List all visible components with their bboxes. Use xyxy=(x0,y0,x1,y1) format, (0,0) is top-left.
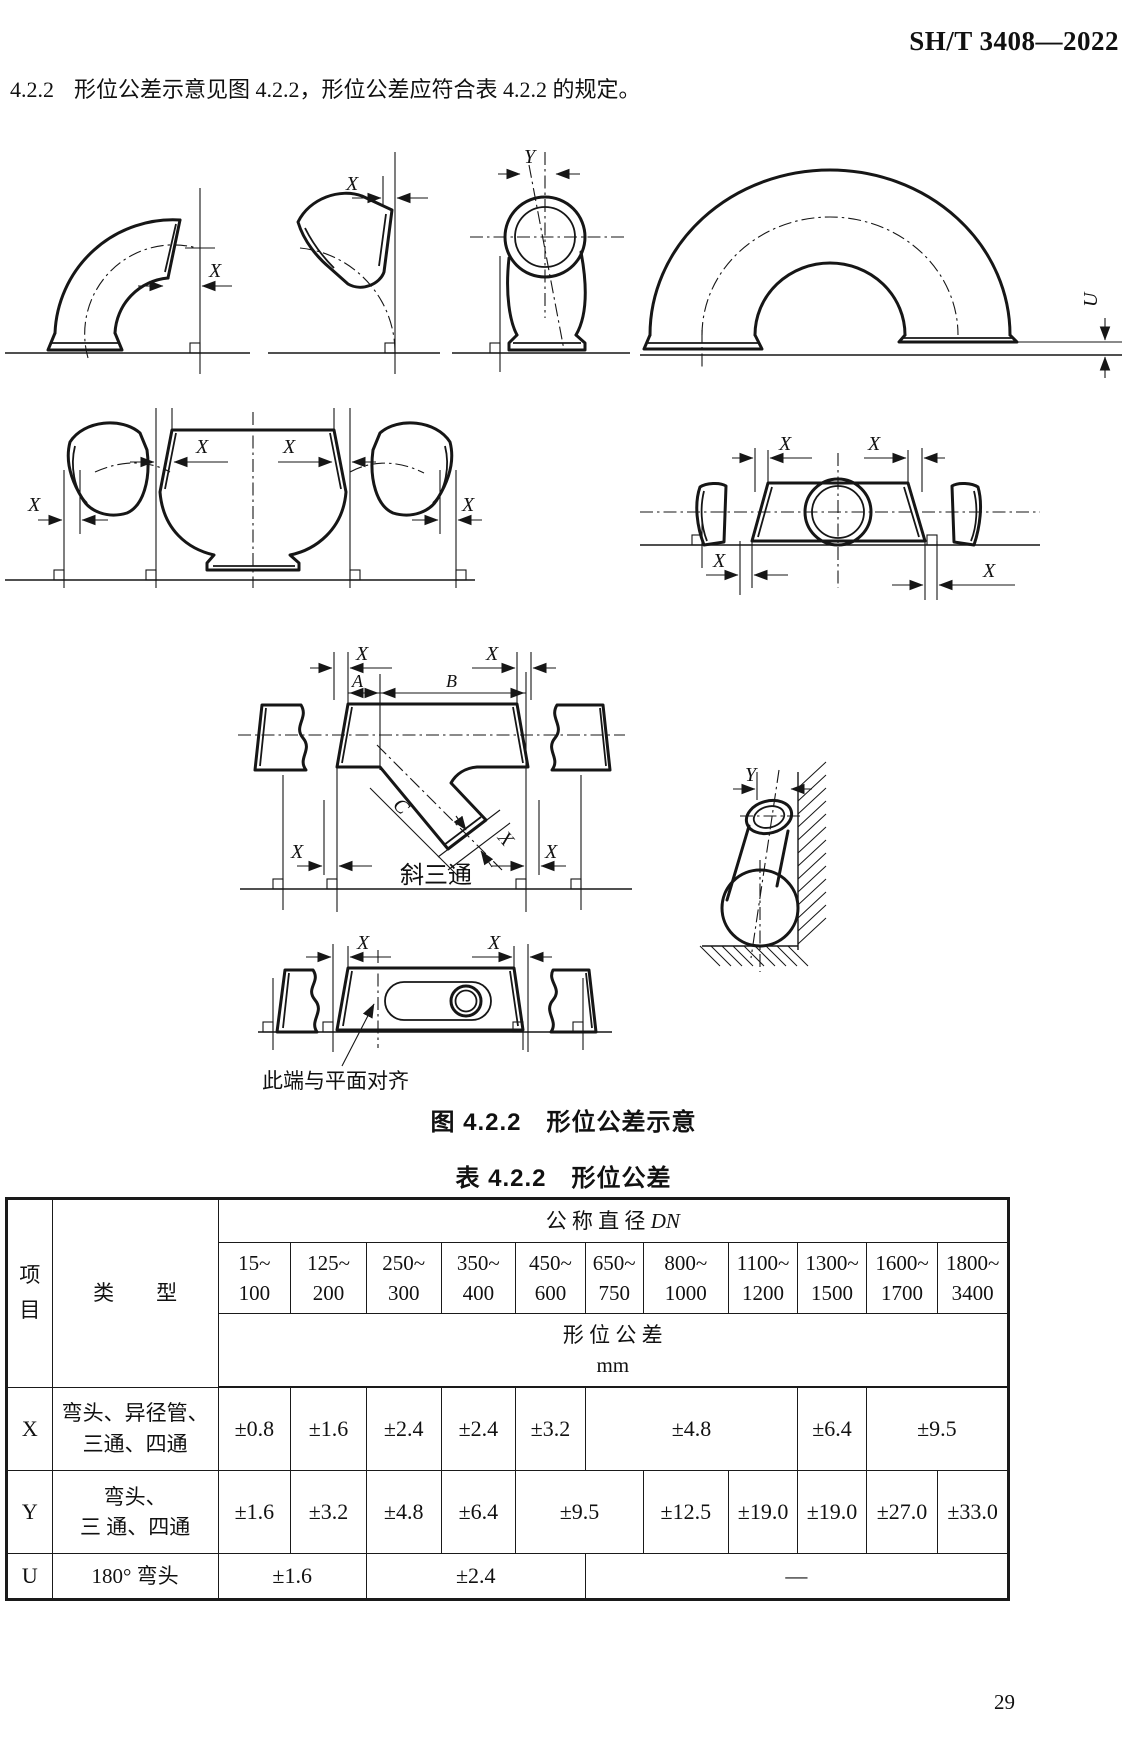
dim-label-x: X xyxy=(356,932,370,954)
col-header-dn-range-5: 650~750 xyxy=(585,1243,643,1314)
row-header: X xyxy=(7,1387,53,1471)
right-angle-mark xyxy=(327,879,337,889)
dim-label-x: X xyxy=(27,494,41,516)
dim-label-a: A xyxy=(351,671,364,691)
dim-label-x: X xyxy=(290,841,304,863)
tolerance-cell: ±1.6 xyxy=(291,1387,367,1471)
dim-label-x: X xyxy=(487,932,501,954)
table-caption: 表 4.2.2 形位公差 xyxy=(0,1158,1127,1193)
dim-label-u: U xyxy=(1080,291,1102,307)
col-header-item: 项目 xyxy=(7,1199,53,1388)
tolerance-cell: ±4.8 xyxy=(366,1471,441,1554)
dim-label-x: X xyxy=(195,436,209,458)
tolerance-cell: ±2.4 xyxy=(366,1554,585,1600)
page-number: 29 xyxy=(994,1690,1015,1715)
tolerance-cell: ±6.4 xyxy=(798,1387,866,1471)
dim-label-y: Y xyxy=(745,764,758,786)
dim-label-x: X xyxy=(778,433,792,455)
right-angle-mark xyxy=(490,343,500,353)
col-header-dn-range-7: 1100~1200 xyxy=(728,1243,797,1314)
col-header-dn-range-6: 800~1000 xyxy=(643,1243,728,1314)
tolerance-cell: ±19.0 xyxy=(728,1471,797,1554)
right-angle-mark xyxy=(323,1022,333,1032)
tolerance-label: 形 位 公 差 xyxy=(219,1320,1007,1350)
tolerance-cell: ±1.6 xyxy=(218,1471,291,1554)
tolerance-cell: ±3.2 xyxy=(291,1471,367,1554)
dim-label-x: X xyxy=(208,260,222,282)
drawing-return-bend-180: U xyxy=(640,170,1122,378)
dn-symbol: DN xyxy=(651,1209,680,1233)
tolerance-cell: ±3.2 xyxy=(516,1387,585,1471)
drawing-tee-front: X X X X xyxy=(5,408,482,588)
right-angle-mark xyxy=(273,879,283,889)
dim-label-x: X xyxy=(867,433,881,455)
tolerance-cell: ±33.0 xyxy=(938,1471,1009,1554)
right-angle-mark xyxy=(263,1022,273,1032)
drawing-tee-horizontal: X X X X xyxy=(640,433,1040,600)
right-angle-mark xyxy=(350,570,360,580)
tolerance-cell: ±27.0 xyxy=(866,1471,938,1554)
dim-label-x: X xyxy=(982,560,996,582)
table-row-y: Y 弯头、三 通、四通 ±1.6 ±3.2 ±4.8 ±6.4 ±9.5 ±12… xyxy=(7,1471,1009,1554)
right-angle-mark xyxy=(456,570,466,580)
drawing-elbow-top-view: Y xyxy=(452,146,630,372)
drawing-lateral-tee: A B X X X X C X 斜三通 xyxy=(238,643,632,912)
col-header-dn-range-1: 125~200 xyxy=(291,1243,367,1314)
tolerance-figure: X X xyxy=(0,0,1127,1100)
dim-label-y: Y xyxy=(524,146,537,168)
dim-label-x: X xyxy=(544,841,558,863)
figure-caption: 图 4.2.2 形位公差示意 xyxy=(0,1102,1127,1137)
right-angle-mark xyxy=(571,879,581,889)
right-angle-mark xyxy=(146,570,156,580)
tolerance-cell: — xyxy=(585,1554,1008,1600)
drawing-elbow-90: X xyxy=(5,188,250,374)
drawing-elbow-45: X xyxy=(268,152,440,374)
lateral-tee-label: 斜三通 xyxy=(400,862,472,889)
tolerance-cell: ±0.8 xyxy=(218,1387,291,1471)
col-header-dn-range-0: 15~100 xyxy=(218,1243,291,1314)
col-header-dn-range-9: 1600~1700 xyxy=(866,1243,938,1314)
drawing-lateral-corner-wall: Y xyxy=(700,762,826,972)
leader-arrow xyxy=(342,1004,374,1066)
dn-label: 公 称 直 径 xyxy=(546,1209,651,1233)
row-header: Y xyxy=(7,1471,53,1554)
type-cell: 弯头、异径管、三通、四通 xyxy=(52,1387,218,1471)
col-header-dn-range-4: 450~600 xyxy=(516,1243,585,1314)
right-angle-mark xyxy=(927,535,937,545)
tolerance-cell: ±9.5 xyxy=(866,1387,1008,1471)
type-cell: 180° 弯头 xyxy=(52,1554,218,1600)
col-header-type: 类 型 xyxy=(52,1199,218,1388)
floor-hatching xyxy=(700,946,808,966)
table-row-x: X 弯头、异径管、三通、四通 ±0.8 ±1.6 ±2.4 ±2.4 ±3.2 … xyxy=(7,1387,1009,1471)
tolerance-cell: ±4.8 xyxy=(585,1387,798,1471)
tolerance-cell: ±2.4 xyxy=(366,1387,441,1471)
dim-label-x: X xyxy=(345,173,359,195)
drawing-lateral-top-view: X X 此端与平面对齐 xyxy=(258,932,612,1093)
dim-label-x: X xyxy=(355,643,369,665)
unit-label: mm xyxy=(219,1350,1007,1380)
dim-label-x: X xyxy=(493,826,519,851)
dim-label-x: X xyxy=(282,436,296,458)
document-page: SH/T 3408—2022 4.2.2形位公差示意见图 4.2.2，形位公差应… xyxy=(0,0,1127,1740)
col-header-dn-range-3: 350~400 xyxy=(441,1243,516,1314)
tolerance-cell: ±12.5 xyxy=(643,1471,728,1554)
tolerance-cell: ±9.5 xyxy=(516,1471,644,1554)
tolerance-cell: ±2.4 xyxy=(441,1387,516,1471)
col-header-dn-range-10: 1800~3400 xyxy=(938,1243,1009,1314)
dim-label-x: X xyxy=(461,494,475,516)
dim-label-x: X xyxy=(485,643,499,665)
table-row-u: U 180° 弯头 ±1.6 ±2.4 — xyxy=(7,1554,1009,1600)
right-angle-mark xyxy=(190,343,200,353)
dim-label-b: B xyxy=(446,671,457,691)
col-header-dn-range-8: 1300~1500 xyxy=(798,1243,866,1314)
tolerance-cell: ±19.0 xyxy=(798,1471,866,1554)
col-header-dn-range-2: 250~300 xyxy=(366,1243,441,1314)
tolerance-cell: ±1.6 xyxy=(218,1554,366,1600)
right-angle-mark xyxy=(54,570,64,580)
col-header-tolerance: 形 位 公 差 mm xyxy=(218,1314,1008,1388)
tolerance-cell: ±6.4 xyxy=(441,1471,516,1554)
col-header-dn: 公 称 直 径 DN xyxy=(218,1199,1008,1243)
dim-label-x: X xyxy=(712,550,726,572)
row-header: U xyxy=(7,1554,53,1600)
tolerance-table: 项目 类 型 公 称 直 径 DN 15~100 125~200 250~300… xyxy=(5,1197,1010,1601)
type-cell: 弯头、三 通、四通 xyxy=(52,1471,218,1554)
right-angle-mark xyxy=(516,879,526,889)
dim-label-c: C xyxy=(388,794,413,819)
align-note: 此端与平面对齐 xyxy=(262,1069,409,1093)
right-angle-mark xyxy=(385,343,395,353)
